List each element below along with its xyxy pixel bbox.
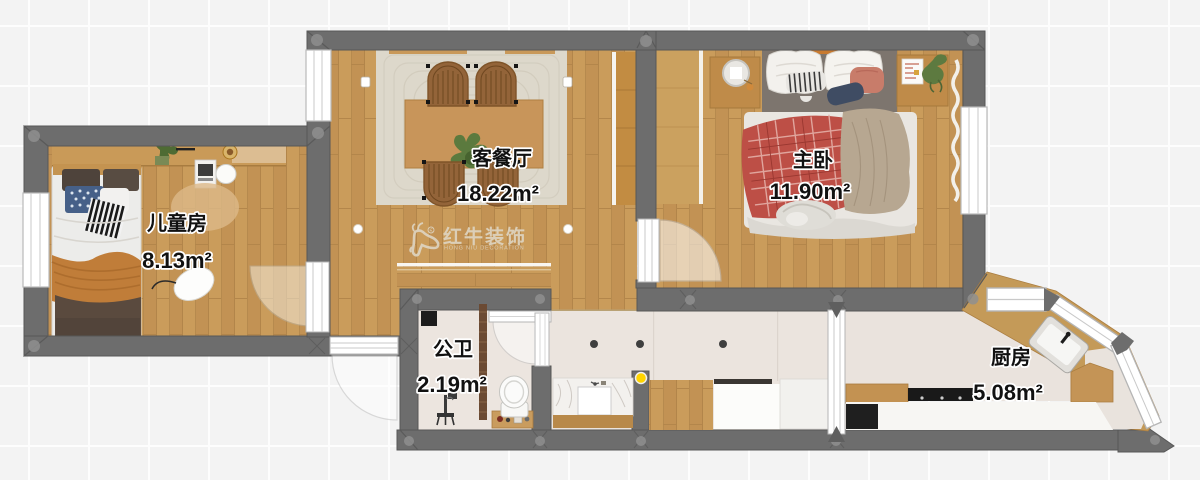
- svg-text:HONG NIU DECORATION: HONG NIU DECORATION: [444, 246, 525, 252]
- svg-text:5.08m²: 5.08m²: [973, 380, 1043, 405]
- svg-text:8.13m²: 8.13m²: [142, 248, 212, 273]
- svg-text:厨房: 厨房: [991, 345, 1031, 369]
- svg-text:公卫: 公卫: [433, 338, 473, 361]
- svg-text:主卧: 主卧: [793, 148, 833, 172]
- svg-text:11.90m²: 11.90m²: [770, 179, 851, 204]
- svg-text:客餐厅: 客餐厅: [471, 146, 532, 170]
- svg-text:2.19m²: 2.19m²: [417, 372, 487, 397]
- svg-text:儿童房: 儿童房: [146, 211, 207, 235]
- svg-text:18.22m²: 18.22m²: [457, 181, 539, 206]
